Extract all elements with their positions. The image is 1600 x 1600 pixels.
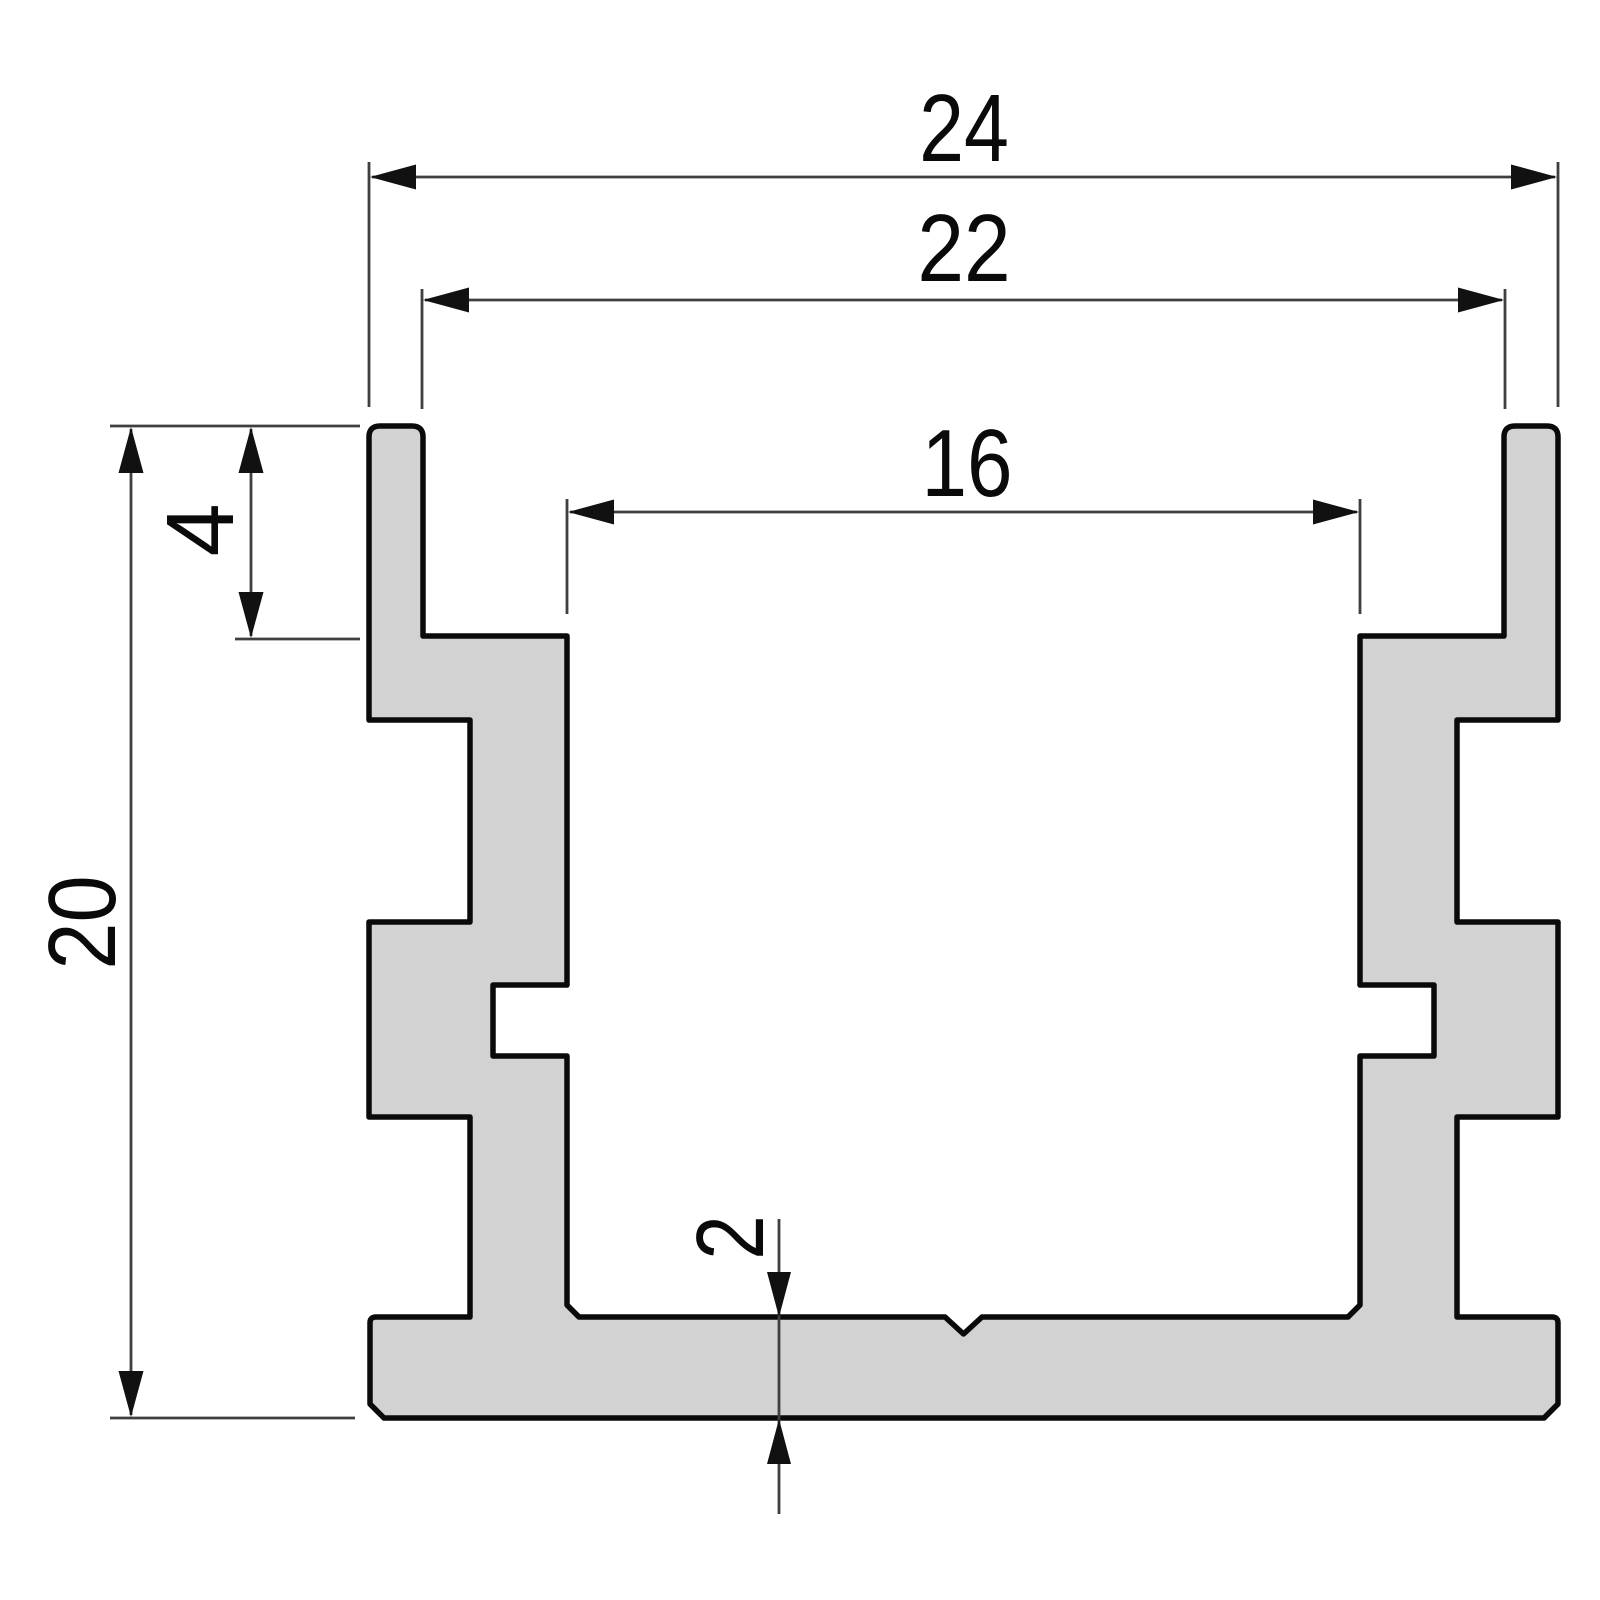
svg-text:22: 22 xyxy=(917,195,1010,303)
svg-text:24: 24 xyxy=(919,74,1009,181)
svg-text:16: 16 xyxy=(921,409,1012,517)
svg-text:2: 2 xyxy=(676,1215,784,1259)
svg-text:20: 20 xyxy=(29,875,136,969)
svg-text:4: 4 xyxy=(147,503,254,556)
